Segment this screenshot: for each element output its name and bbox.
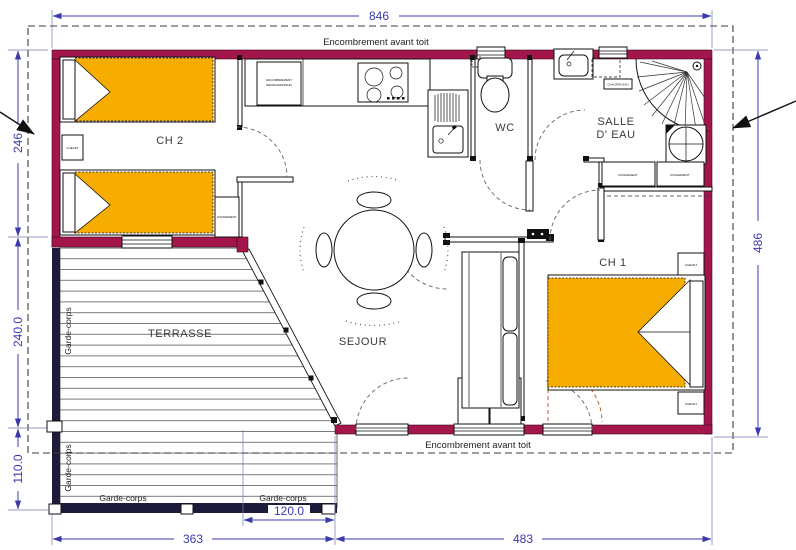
ch2-bed-bottom [60, 170, 215, 235]
dining-table [300, 177, 448, 326]
toilet-icon [472, 57, 512, 112]
window-sejour-bottom [356, 424, 408, 435]
dim-top: 846 [369, 9, 389, 23]
room-label-wc: WC [495, 122, 515, 134]
shower-icon [636, 59, 708, 131]
window-ch1-bottom [543, 424, 592, 435]
guardrail-post [47, 421, 62, 432]
guardrail-label-left-upper: Garde-corps [63, 307, 73, 354]
chevet-label: CHEVET [685, 263, 697, 267]
room-label-ch1: CH 1 [599, 257, 626, 269]
fridge-label-1: ENCOMBREMENT [266, 78, 292, 82]
door-swing-salle-eau [535, 110, 585, 160]
dim-left-upper: 246 [11, 133, 25, 153]
guardrail-post [322, 504, 335, 514]
window-salle-eau-top [599, 47, 627, 58]
bathroom-sink-icon [554, 49, 593, 79]
room-label-sejour: SEJOUR [339, 336, 387, 348]
ch1-door-leaf [598, 188, 604, 240]
dim-left-lower: 110.0 [11, 454, 25, 483]
ch1-nightstand-top: CHEVET [678, 253, 704, 275]
rangement-label: RANGEMENT [618, 173, 637, 177]
door-swing-ch1 [550, 190, 600, 240]
door-swing-wc [480, 160, 530, 210]
room-label-ch2: CH 2 [156, 135, 183, 147]
water-heater-label: CHAUFFE-EAU [607, 83, 628, 87]
tv-icon [527, 229, 549, 239]
floor-plan-drawing: CHEVET RANGEMENT ENCOMBREMENT REFRIGERAT… [0, 0, 796, 550]
washing-machine-icon [666, 125, 706, 164]
ch1-bed [548, 275, 705, 390]
stove-icon [358, 63, 408, 102]
guardrail-post [49, 504, 61, 514]
guardrail-label-left-lower: Garde-corps [63, 444, 73, 491]
pointer-arrow-right-icon [733, 101, 796, 128]
floor-plan-page: CHEVET RANGEMENT ENCOMBREMENT REFRIGERAT… [0, 0, 796, 550]
kitchen-sink-icon [428, 90, 468, 157]
sde-storage-cabinets: RANGEMENT RANGEMENT [602, 162, 704, 186]
chair-icon [357, 293, 391, 309]
kitchen-counter: ENCOMBREMENT REFRIGERATEUR [245, 59, 430, 106]
wc-door-leaf [526, 161, 533, 211]
window-wc-top [477, 47, 505, 59]
water-heater-box: CHAUFFE-EAU [592, 58, 632, 89]
fridge-space: ENCOMBREMENT REFRIGERATEUR [257, 62, 301, 105]
guardrail-left-bar [52, 248, 60, 508]
ch2-bed-top [60, 57, 215, 122]
chair-icon [316, 233, 332, 267]
window-ch2-bottom [122, 236, 172, 248]
window-swing-left [356, 378, 408, 430]
guardrail-post [181, 504, 193, 514]
room-label-salle-eau-1: SALLE [597, 116, 634, 128]
dim-bottom-right: 483 [513, 532, 533, 546]
roof-overhang-label-top: Encombrement avant toit [323, 37, 429, 48]
ch1-nightstand-bottom: CHEVET [678, 392, 704, 414]
chair-icon [416, 233, 432, 267]
guardrail-label-bottom-left: Garde-corps [99, 493, 146, 503]
room-label-terrasse: TERRASSE [148, 328, 212, 340]
french-door-opening [454, 424, 524, 435]
dim-terrace-inner: 120.0 [274, 504, 304, 518]
door-swing-kitchen-hall [237, 127, 287, 177]
chair-icon [357, 192, 391, 208]
dim-terrace-width: 363 [183, 532, 203, 546]
fridge-label-2: REFRIGERATEUR [266, 83, 292, 87]
dim-right: 486 [751, 233, 765, 253]
rangement-label: RANGEMENT [217, 215, 236, 219]
terrace-deck [47, 248, 337, 514]
roof-overhang-label-bottom: Encombrement avant toit [425, 440, 531, 451]
guardrail-label-bottom-right: Garde-corps [259, 493, 306, 503]
chevet-label: CHEVET [685, 402, 697, 406]
ch2-wardrobe: RANGEMENT [215, 197, 239, 237]
sofa-icon [462, 252, 519, 408]
room-label-salle-eau-2: D' EAU [596, 129, 635, 141]
chevet-label: CHEVET [66, 146, 78, 150]
rangement-label: RANGEMENT [670, 173, 689, 177]
dim-left-middle: 240.0 [11, 317, 25, 347]
ch2-nightstand: CHEVET [62, 135, 83, 160]
